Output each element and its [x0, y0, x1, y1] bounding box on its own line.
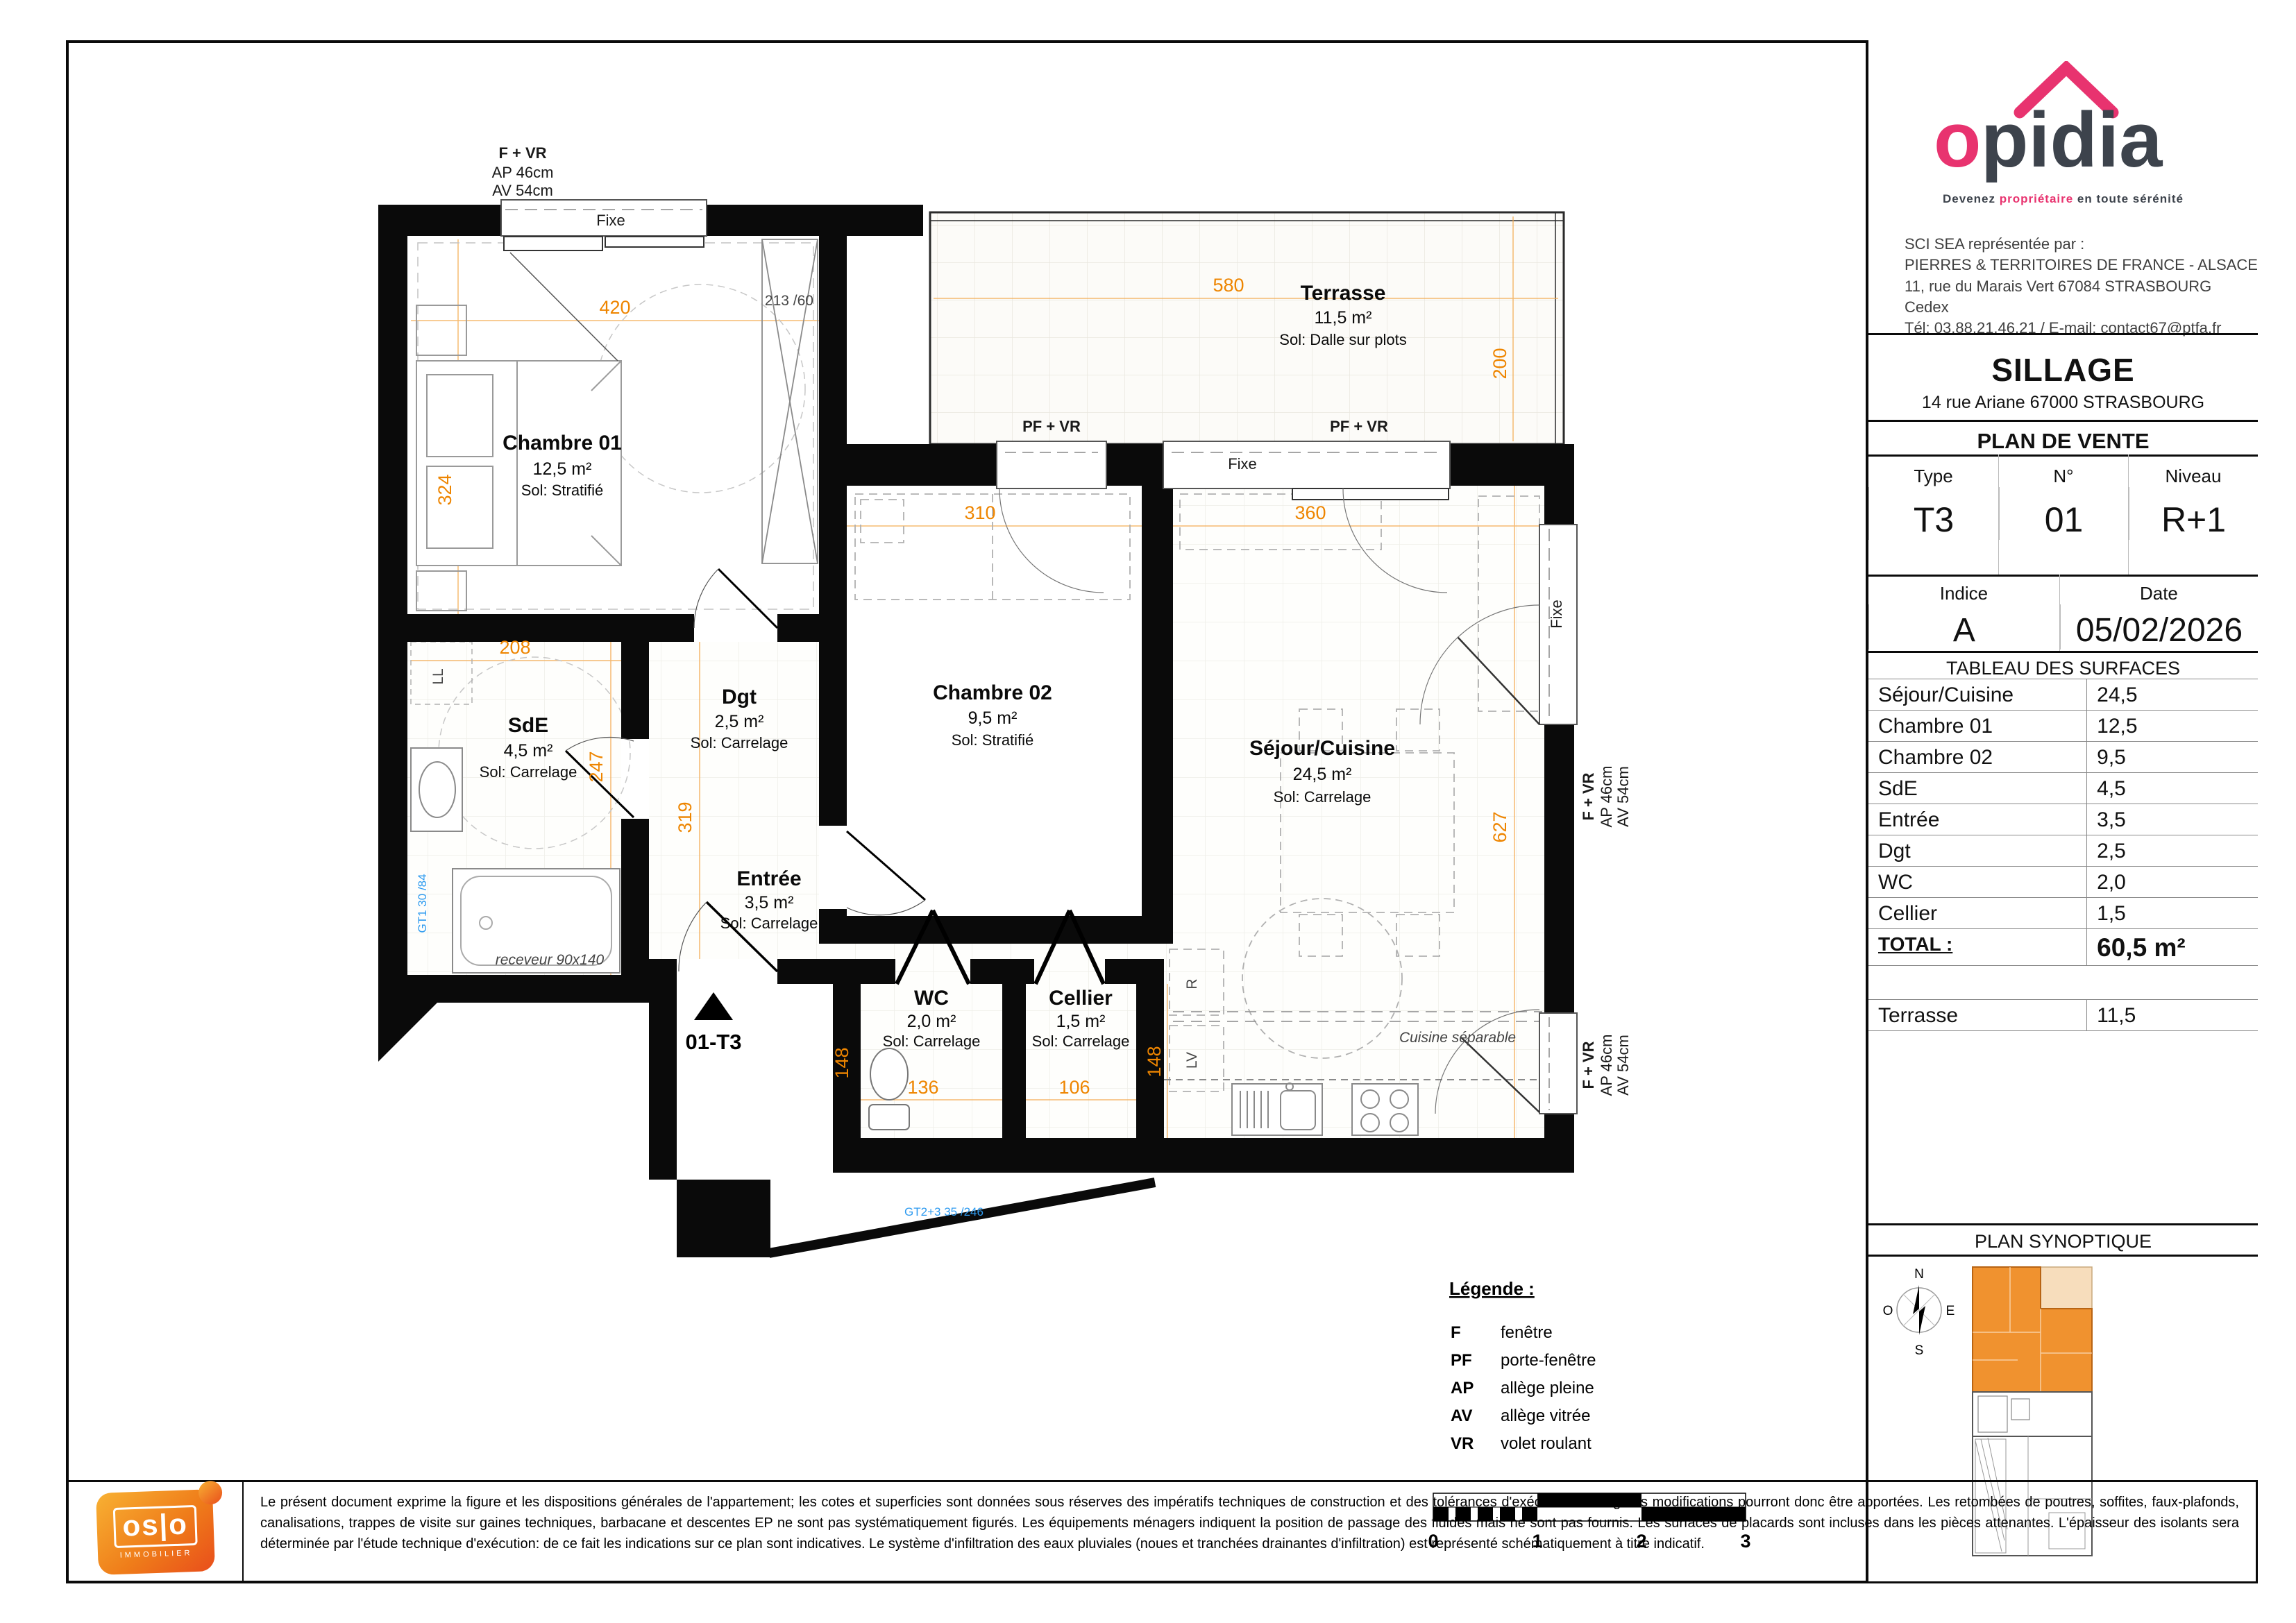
- surface-spacer-row: [1868, 965, 2258, 999]
- dim-319: 319: [675, 801, 695, 833]
- logo-rest: pidia: [1981, 96, 2163, 182]
- dishwasher-label: LV: [1184, 1052, 1200, 1069]
- toilet: [869, 1048, 909, 1130]
- row3-value: 4,5: [2086, 773, 2258, 804]
- row3-label: SdE: [1868, 773, 2086, 804]
- surfaces-title: TABLEAU DES SURFACES: [1868, 652, 2258, 679]
- num-label: N°: [1999, 454, 2128, 487]
- legend-v-1: porte-fenêtre: [1501, 1351, 1596, 1370]
- floor-entree: Sol: Carrelage: [720, 915, 818, 932]
- ll-label: LL: [430, 668, 446, 684]
- label-chambre02: Chambre 02: [933, 681, 1052, 704]
- dim-310: 310: [964, 502, 995, 523]
- compass-rose: N S O E: [1881, 1267, 1957, 1357]
- entrance-marker: 01-T3: [686, 992, 742, 1054]
- dim-148b: 148: [1144, 1046, 1165, 1077]
- plan-de-vente-page: 01-T3 Chambre 01 12,5 m² Sol: Stratifié …: [0, 0, 2296, 1623]
- type-value: T3: [1868, 487, 1998, 540]
- meta-table-2: Indice A Date 05/02/2026: [1868, 575, 2258, 651]
- surface-row: Entrée3,5: [1868, 804, 2258, 835]
- area-chambre02: 9,5 m²: [968, 708, 1018, 728]
- indice-value: A: [1868, 604, 2059, 649]
- surface-row: Séjour/Cuisine24,5: [1868, 679, 2258, 710]
- label-sejour: Séjour/Cuisine: [1249, 737, 1395, 760]
- program-block: SILLAGE 14 rue Ariane 67000 STRASBOURG: [1868, 351, 2258, 413]
- sidebar: o pidia Devenez propriétaire en toute sé…: [1866, 40, 2258, 1583]
- floor-sejour: Sol: Carrelage: [1274, 788, 1371, 806]
- dim-324: 324: [434, 474, 455, 505]
- legend-k-4: VR: [1451, 1434, 1474, 1453]
- surface-total-row: TOTAL :60,5 m²: [1868, 928, 2258, 965]
- gt2-label: GT2+3 35 /246: [904, 1205, 984, 1218]
- meta-table-1: Type T3 N° 01 Niveau R+1: [1868, 454, 2258, 575]
- synoptique-title-text: PLAN SYNOPTIQUE: [1975, 1231, 2152, 1252]
- door-chambre02: [847, 831, 925, 915]
- surface-row: Cellier1,5: [1868, 897, 2258, 928]
- receveur-label: receveur 90x140: [496, 952, 605, 968]
- window-pf-terrasse: [997, 441, 1106, 593]
- dim-placard: 213 /60: [765, 293, 813, 309]
- legend-v-0: fenêtre: [1501, 1323, 1553, 1342]
- oslo-logo: os|o IMMOBILIER: [96, 1489, 215, 1575]
- logo-o: o: [1934, 96, 1981, 182]
- row6-label: WC: [1868, 867, 2086, 897]
- legend-v-2: allège pleine: [1501, 1379, 1594, 1397]
- window-right2-ap: AP 46cm: [1598, 1035, 1615, 1096]
- dim-106: 106: [1058, 1077, 1090, 1098]
- brand-block: o pidia Devenez propriétaire en toute sé…: [1868, 53, 2258, 333]
- row1-label: Chambre 01: [1868, 711, 2086, 741]
- floor-plan: 01-T3 Chambre 01 12,5 m² Sol: Stratifié …: [66, 40, 1867, 1585]
- floor-terrasse: Sol: Dalle sur plots: [1279, 331, 1406, 348]
- row0-label: Séjour/Cuisine: [1868, 679, 2086, 710]
- label-sde: SdE: [508, 714, 548, 737]
- dim-136: 136: [907, 1077, 938, 1098]
- row2-value: 9,5: [2086, 742, 2258, 772]
- pf-vr-2: PF + VR: [1330, 418, 1388, 435]
- fridge-label: R: [1184, 978, 1200, 989]
- surface-row: Chambre 0112,5: [1868, 710, 2258, 741]
- area-sde: 4,5 m²: [504, 741, 553, 760]
- num-value: 01: [1999, 487, 2128, 540]
- type-label: Type: [1868, 454, 1998, 487]
- program-address: 14 rue Ariane 67000 STRASBOURG: [1868, 393, 2258, 413]
- row4-value: 3,5: [2086, 804, 2258, 835]
- dim-247: 247: [586, 751, 607, 782]
- doc-title: PLAN DE VENTE: [1868, 422, 2258, 454]
- niveau-label: Niveau: [2129, 454, 2258, 487]
- brand-tagline: Devenez propriétaire en toute sérénité: [1868, 192, 2258, 206]
- fixe-right: Fixe: [1548, 600, 1565, 629]
- window-right1-title: F + VR: [1580, 772, 1597, 820]
- pf-vr-1: PF + VR: [1022, 418, 1081, 435]
- disclaimer-text: Le présent document exprime la figure et…: [244, 1482, 2256, 1581]
- area-wc: 2,0 m²: [907, 1012, 956, 1031]
- label-entree: Entrée: [736, 867, 801, 890]
- row6-value: 2,0: [2086, 867, 2258, 897]
- window-right2-av: AV 54cm: [1614, 1035, 1632, 1096]
- floor-chambre01: Sol: Stratifié: [521, 482, 604, 499]
- window-right1-av: AV 54cm: [1614, 766, 1632, 827]
- surface-row: SdE4,5: [1868, 772, 2258, 804]
- label-dgt: Dgt: [722, 686, 757, 708]
- tagline-hl: propriétaire: [2000, 192, 2073, 205]
- floor-chambre02: Sol: Stratifié: [952, 731, 1034, 749]
- fixe-top: Fixe: [596, 212, 625, 229]
- label-terrasse: Terrasse: [1301, 282, 1386, 305]
- window-top-ap: AP 46cm: [492, 164, 554, 181]
- dim-208: 208: [499, 637, 530, 658]
- footer: os|o IMMOBILIER Le présent document expr…: [67, 1480, 2258, 1583]
- row0-value: 24,5: [2086, 679, 2258, 710]
- niveau-value: R+1: [2129, 487, 2258, 540]
- marker-label: 01-T3: [686, 1030, 742, 1054]
- row2-label: Chambre 02: [1868, 742, 2086, 772]
- label-cellier: Cellier: [1049, 987, 1113, 1010]
- addr-line-2: 11, rue du Marais Vert 67084 STRASBOURG …: [1905, 276, 2258, 318]
- cuisine-separable-label: Cuisine séparable: [1399, 1030, 1516, 1046]
- legend-k-3: AV: [1451, 1407, 1473, 1425]
- terrasse-label: Terrasse: [1868, 1000, 2086, 1030]
- floor-dgt: Sol: Carrelage: [691, 734, 788, 751]
- bed: [416, 305, 621, 611]
- legend-title: Légende :: [1449, 1278, 1535, 1299]
- dim-360: 360: [1294, 502, 1326, 523]
- legend: Légende : F fenêtre PF porte-fenêtre AP …: [1449, 1278, 1596, 1453]
- indice-label: Indice: [1868, 575, 2059, 604]
- surfaces-title-text: TABLEAU DES SURFACES: [1946, 658, 2180, 679]
- legend-k-1: PF: [1451, 1351, 1472, 1370]
- addr-line-3: Tél: 03.88.21.46.21 / E-mail: contact67@…: [1905, 318, 2258, 339]
- area-terrasse: 11,5 m²: [1315, 308, 1372, 328]
- window-right2-title: F + VR: [1580, 1041, 1597, 1089]
- dim-580: 580: [1213, 275, 1244, 296]
- dim-148a: 148: [832, 1047, 852, 1078]
- surface-row: Chambre 029,5: [1868, 741, 2258, 772]
- legend-k-0: F: [1451, 1323, 1461, 1342]
- legend-v-3: allège vitrée: [1501, 1407, 1590, 1425]
- legend-v-4: volet roulant: [1501, 1434, 1592, 1453]
- date-label: Date: [2060, 575, 2258, 604]
- row7-label: Cellier: [1868, 898, 2086, 928]
- wardrobe-placard: [762, 239, 818, 563]
- legend-k-2: AP: [1451, 1379, 1474, 1397]
- door-chambre01: [694, 569, 777, 628]
- gt1-label: GT1 30 /84: [416, 874, 429, 933]
- surfaces-table: Séjour/Cuisine24,5 Chambre 0112,5 Chambr…: [1868, 679, 2258, 1031]
- surface-row: WC2,0: [1868, 866, 2258, 897]
- row4-label: Entrée: [1868, 804, 2086, 835]
- label-chambre01: Chambre 01: [503, 432, 622, 454]
- row7-value: 1,5: [2086, 898, 2258, 928]
- area-entree: 3,5 m²: [745, 893, 794, 912]
- tagline-2: en toute sérénité: [2073, 192, 2184, 205]
- row5-label: Dgt: [1868, 835, 2086, 866]
- floor-wc: Sol: Carrelage: [883, 1033, 981, 1050]
- dim-200: 200: [1489, 348, 1510, 379]
- compass-e: E: [1946, 1304, 1955, 1318]
- terrasse-value: 11,5: [2086, 1000, 2258, 1030]
- program-name: SILLAGE: [1868, 351, 2258, 389]
- oslo-logo-text: os|o: [113, 1504, 198, 1547]
- compass-n: N: [1914, 1267, 1924, 1282]
- compass-o: O: [1883, 1304, 1893, 1318]
- floor-cellier: Sol: Carrelage: [1032, 1033, 1130, 1050]
- window-right1-ap: AP 46cm: [1598, 766, 1615, 828]
- oslo-logo-subtext: IMMOBILIER: [120, 1548, 193, 1559]
- date-value: 05/02/2026: [2060, 604, 2258, 649]
- area-cellier: 1,5 m²: [1056, 1012, 1106, 1031]
- disclaimer-span: Le présent document exprime la figure et…: [260, 1495, 2239, 1552]
- window-top-title: F + VR: [498, 144, 546, 162]
- dim-627: 627: [1489, 811, 1510, 842]
- floor-sde: Sol: Carrelage: [480, 763, 577, 781]
- compass-s: S: [1915, 1343, 1924, 1357]
- total-label: TOTAL :: [1868, 929, 2086, 965]
- row1-value: 12,5: [2086, 711, 2258, 741]
- area-dgt: 2,5 m²: [715, 712, 764, 731]
- row5-value: 2,5: [2086, 835, 2258, 866]
- area-sejour: 24,5 m²: [1293, 765, 1352, 784]
- surface-terrasse-row: Terrasse11,5: [1868, 999, 2258, 1030]
- fixe-terrasse: Fixe: [1228, 455, 1257, 473]
- opidia-logo: o pidia: [1914, 61, 2213, 182]
- window-top-av: AV 54cm: [492, 182, 553, 199]
- washbasin: [411, 748, 462, 831]
- surface-row: Dgt2,5: [1868, 835, 2258, 866]
- oslo-logo-cell: os|o IMMOBILIER: [69, 1482, 244, 1581]
- brand-address: SCI SEA représentée par : PIERRES & TERR…: [1868, 234, 2258, 339]
- doc-title-text: PLAN DE VENTE: [1977, 429, 2149, 453]
- area-chambre01: 12,5 m²: [533, 459, 592, 479]
- synoptique-title: PLAN SYNOPTIQUE: [1868, 1225, 2258, 1252]
- tagline-1: Devenez: [1943, 192, 2000, 205]
- addr-line-1: PIERRES & TERRITOIRES DE FRANCE - ALSACE: [1905, 255, 2258, 275]
- dim-420: 420: [599, 297, 630, 318]
- total-value: 60,5 m²: [2086, 929, 2258, 965]
- addr-line-0: SCI SEA représentée par :: [1905, 234, 2258, 255]
- label-wc: WC: [914, 987, 949, 1010]
